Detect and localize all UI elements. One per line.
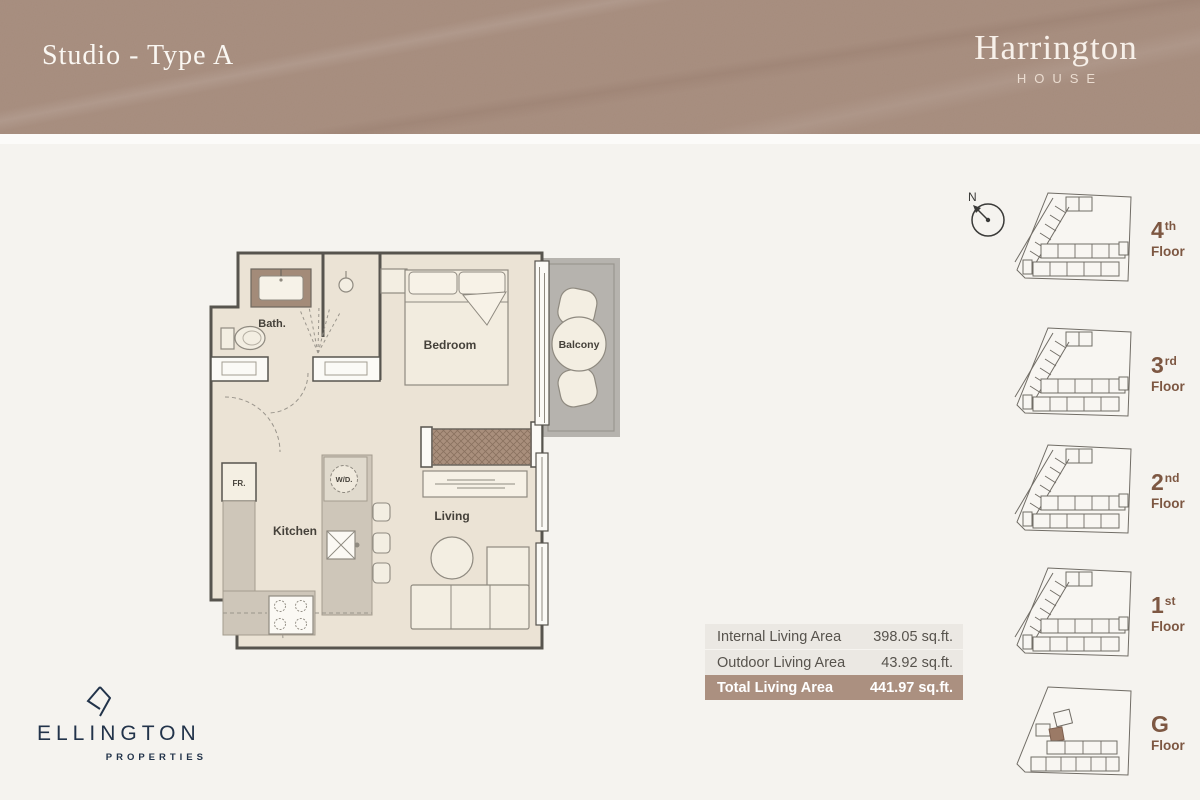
balcony-label: Balcony xyxy=(559,339,600,351)
floor-word: Floor xyxy=(1151,739,1185,753)
pillow-icon xyxy=(409,272,457,294)
floor-number: G xyxy=(1151,711,1169,737)
floor-row-1st: 1st Floor xyxy=(1003,565,1185,662)
bath-label: Bath. xyxy=(258,318,286,330)
fridge-label: FR. xyxy=(233,479,246,488)
area-label: Internal Living Area xyxy=(717,629,841,645)
coffee-table-icon xyxy=(431,537,473,579)
floor-label-ground: G Floor xyxy=(1151,713,1185,753)
floorplan-brochure-page: { "banner": { "title": "Studio - Type A"… xyxy=(0,0,1200,800)
keyplan-1st-floor xyxy=(1003,565,1137,662)
floor-ordinal: nd xyxy=(1165,471,1180,485)
bar-stool-icon xyxy=(373,503,390,521)
ellington-flag-icon xyxy=(83,686,111,718)
washer-label: W/D. xyxy=(336,475,353,484)
table-row: Internal Living Area 398.05 sq.ft. xyxy=(705,624,963,649)
brand-subtitle: HOUSE xyxy=(946,71,1166,86)
toilet-tank-icon xyxy=(221,328,234,349)
bedroom-label: Bedroom xyxy=(424,338,477,352)
area-label: Total Living Area xyxy=(717,680,833,696)
floor-word: Floor xyxy=(1151,497,1185,511)
nightstand-icon xyxy=(381,269,407,293)
sliding-door xyxy=(535,261,549,425)
living-label: Living xyxy=(434,509,469,523)
area-value: 441.97 sq.ft. xyxy=(870,680,953,696)
brand-name: Harrington xyxy=(946,28,1166,68)
keyplan-2nd-floor xyxy=(1003,442,1137,539)
floor-number: 4 xyxy=(1151,217,1164,243)
north-label: N xyxy=(968,190,977,204)
floor-ordinal: th xyxy=(1165,219,1176,233)
floor-label-3rd: 3rd Floor xyxy=(1151,354,1185,394)
floor-row-2nd: 2nd Floor xyxy=(1003,442,1185,539)
logo-subtitle: PROPERTIES xyxy=(37,752,207,763)
compass-needle xyxy=(977,209,988,220)
table-row-total: Total Living Area 441.97 sq.ft. xyxy=(705,675,963,700)
window xyxy=(536,453,548,531)
wall-post xyxy=(421,427,432,467)
keyplan-3rd-floor xyxy=(1003,325,1137,422)
living-area-table: Internal Living Area 398.05 sq.ft. Outdo… xyxy=(705,624,963,700)
floor-word: Floor xyxy=(1151,380,1185,394)
banner-divider xyxy=(0,134,1200,144)
shower-head-icon xyxy=(339,278,353,292)
page-title: Studio - Type A xyxy=(42,40,234,72)
floor-row-4th: 4th Floor xyxy=(1003,190,1185,287)
pillow-icon xyxy=(459,272,505,294)
window xyxy=(536,543,548,625)
keyplan-4th-floor xyxy=(1003,190,1137,287)
floor-number: 1 xyxy=(1151,592,1164,618)
cased-wall-segment xyxy=(211,357,268,381)
floor-number: 3 xyxy=(1151,352,1164,378)
floor-word: Floor xyxy=(1151,620,1185,634)
floor-ordinal: rd xyxy=(1165,354,1177,368)
floor-word: Floor xyxy=(1151,245,1185,259)
sofa-chaise-icon xyxy=(487,547,529,589)
floor-label-4th: 4th Floor xyxy=(1151,219,1185,259)
balcony: Balcony xyxy=(542,258,620,437)
sofa-icon xyxy=(411,585,529,629)
floor-number: 2 xyxy=(1151,469,1164,495)
floor-row-3rd: 3rd Floor xyxy=(1003,325,1185,422)
area-value: 398.05 sq.ft. xyxy=(873,629,953,645)
header-banner: Studio - Type A Harrington HOUSE xyxy=(0,0,1200,134)
keyplan-ground-floor xyxy=(1003,684,1137,781)
area-value: 43.92 sq.ft. xyxy=(881,655,953,671)
unit-floor-plan: Balcony Bath. Bedroom xyxy=(195,245,635,655)
floor-label-2nd: 2nd Floor xyxy=(1151,471,1185,511)
floor-ordinal: st xyxy=(1165,594,1176,608)
kitchen-label: Kitchen xyxy=(273,524,317,538)
bar-stool-icon xyxy=(373,563,390,583)
brand-logo: Harrington HOUSE xyxy=(946,28,1166,86)
bar-stool-icon xyxy=(373,533,390,553)
area-label: Outdoor Living Area xyxy=(717,655,845,671)
wardrobe-icon xyxy=(432,429,531,465)
logo-name: ELLINGTON xyxy=(37,722,207,746)
cased-wall-segment xyxy=(313,357,380,381)
floor-row-ground: G Floor xyxy=(1003,684,1185,781)
ellington-logo: ELLINGTON PROPERTIES xyxy=(37,686,207,763)
floor-label-1st: 1st Floor xyxy=(1151,594,1185,634)
stove-icon xyxy=(269,596,313,634)
table-row: Outdoor Living Area 43.92 sq.ft. xyxy=(705,649,963,675)
